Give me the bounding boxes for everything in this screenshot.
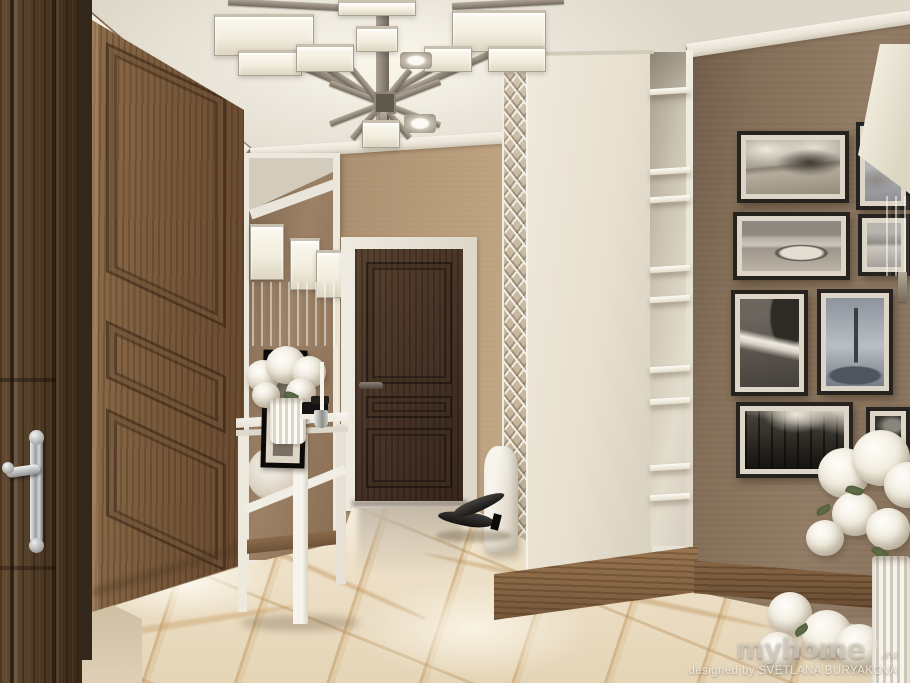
door-shadow — [352, 500, 468, 507]
chandelier-hub — [374, 92, 396, 114]
sconce-shade — [250, 224, 284, 280]
photo-waterfall — [740, 299, 799, 387]
sconce-crystal-drops — [886, 196, 910, 276]
ceiling-spotlight — [404, 114, 436, 133]
entry-door-rail — [0, 566, 56, 570]
door-handle — [359, 382, 383, 389]
photo-frame-boat — [733, 212, 850, 280]
entry-door-bevel — [14, 0, 17, 683]
door-jamb — [78, 0, 92, 660]
door-panel-bottom — [366, 428, 452, 488]
oak-door-panel-bottom — [106, 408, 226, 572]
chandelier-shade — [338, 0, 416, 16]
entry-door-rail — [0, 378, 56, 382]
photo-frame-road — [737, 131, 849, 203]
watermark-logo: myhome .ru — [688, 635, 898, 663]
watermark: myhome .ru designed by SVETLANA BURYAKOV… — [688, 635, 898, 677]
lever-knob — [2, 462, 14, 474]
brand-suffix: .ru — [881, 648, 898, 661]
photo-tree — [826, 298, 884, 386]
chandelier-shade — [296, 44, 354, 72]
designer-credit: designed by SVETLANA BURYAKOVA — [688, 665, 898, 677]
entry-door-bevel — [56, 0, 59, 683]
photo-road — [746, 140, 840, 194]
fg-flower — [866, 508, 910, 550]
door-handle-plate — [30, 436, 43, 544]
chandelier-shade — [362, 120, 400, 148]
handle-ornament — [29, 430, 44, 445]
door-panel-top — [366, 262, 452, 384]
oak-door — [88, 18, 246, 618]
chandelier-shade — [238, 50, 302, 76]
photo-boat — [742, 221, 841, 271]
chandelier-shade — [356, 26, 398, 52]
table-right-leg — [336, 424, 346, 584]
hallway-render: myhome .ru designed by SVETLANA BURYAKOV… — [0, 0, 910, 683]
ceiling-spotlight — [400, 52, 432, 69]
handle-ornament — [29, 538, 44, 553]
photo-frame-waterfall — [731, 290, 808, 396]
house-icon — [867, 635, 880, 653]
fg-flower — [806, 520, 844, 556]
chandelier-shade — [488, 46, 546, 72]
ribbed-vase — [270, 398, 306, 444]
taper-candle — [320, 362, 324, 412]
sconce-arm — [898, 272, 907, 302]
photo-frame-tree — [817, 289, 893, 395]
candle-holder — [314, 410, 328, 428]
oak-door-edge — [92, 18, 98, 618]
brand-text: myhome — [736, 635, 865, 663]
shoes-shadow — [436, 530, 512, 542]
door-panel-middle — [366, 396, 452, 418]
table-back-leg — [238, 430, 247, 612]
sconce-crystals — [252, 282, 340, 346]
